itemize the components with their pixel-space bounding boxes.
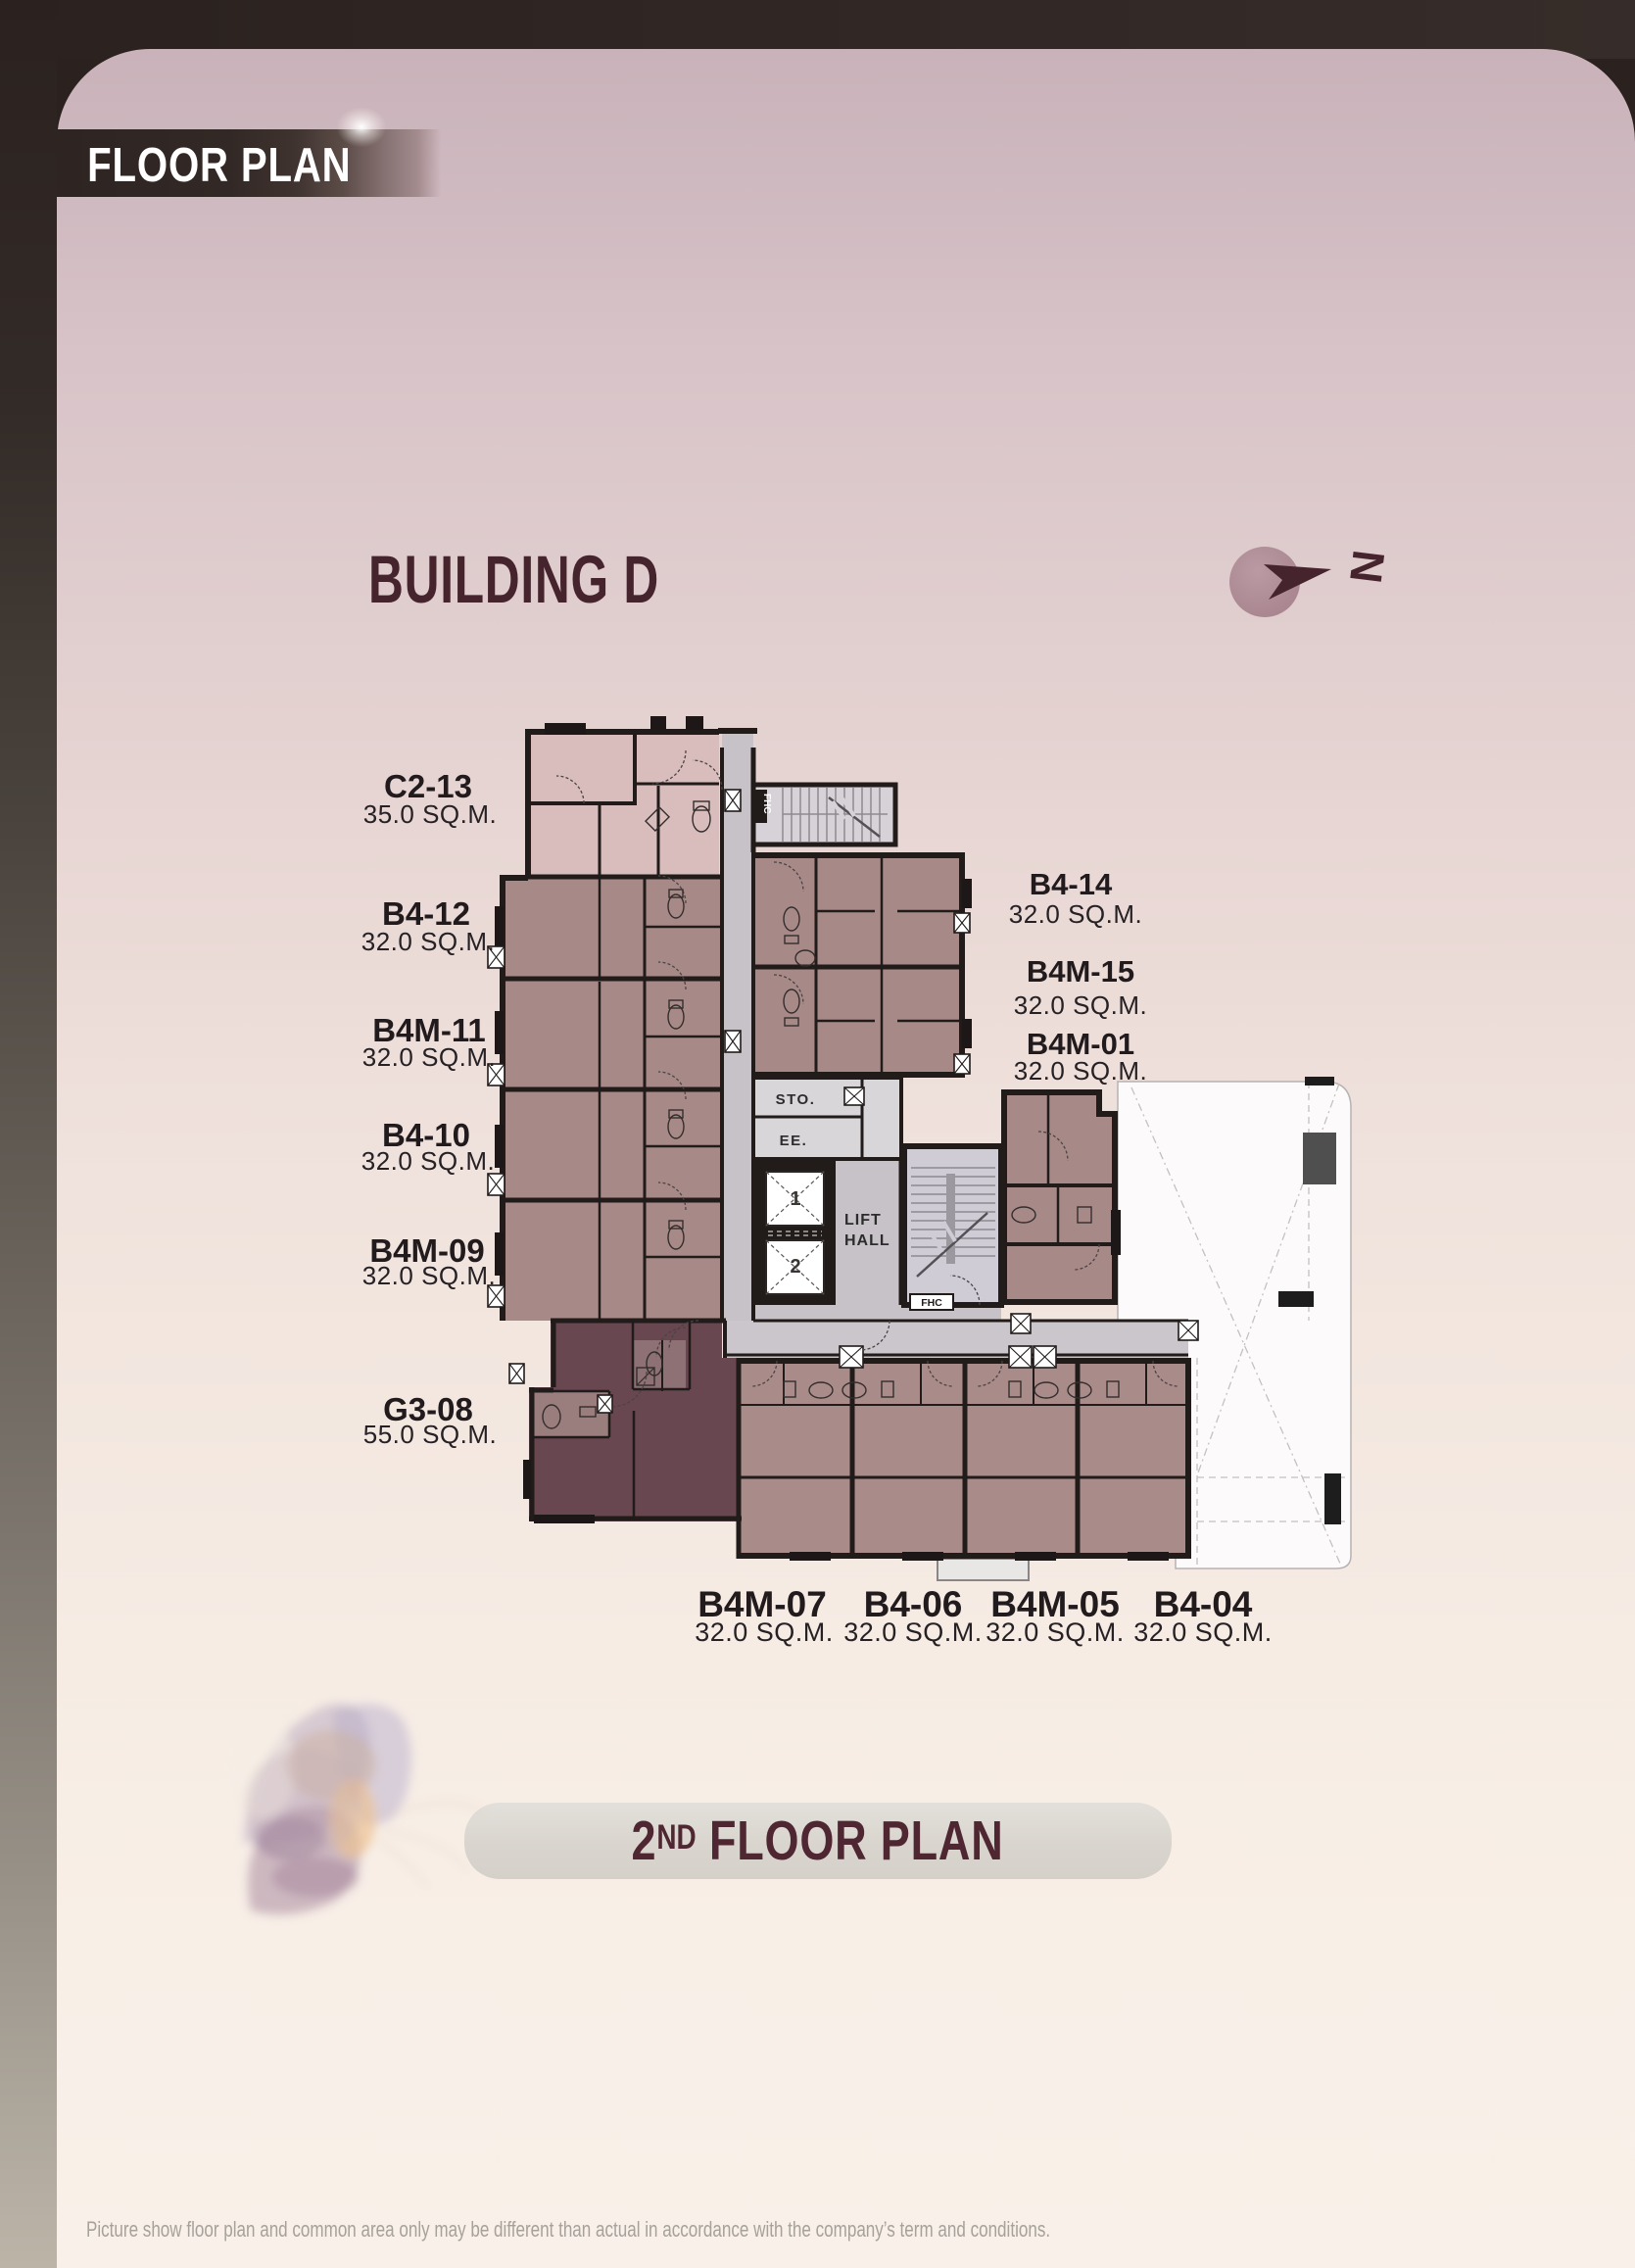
- svg-text:B4-14: B4-14: [1030, 867, 1113, 901]
- svg-text:2: 2: [790, 1256, 800, 1278]
- svg-text:32.0 SQ.M.: 32.0 SQ.M.: [362, 1042, 497, 1072]
- svg-text:55.0 SQ.M.: 55.0 SQ.M.: [363, 1420, 498, 1449]
- svg-text:32.0 SQ.M.: 32.0 SQ.M.: [1014, 1056, 1148, 1086]
- svg-text:32.0 SQ.M.: 32.0 SQ.M.: [361, 1146, 496, 1176]
- svg-text:32.0 SQ.M.: 32.0 SQ.M.: [361, 927, 496, 956]
- svg-text:FHC: FHC: [761, 794, 772, 814]
- svg-text:B4M-15: B4M-15: [1027, 954, 1134, 989]
- svg-text:EE.: EE.: [780, 1133, 808, 1149]
- svg-text:32.0 SQ.M.: 32.0 SQ.M.: [1014, 990, 1148, 1020]
- svg-text:32.0 SQ.M.: 32.0 SQ.M.: [1009, 899, 1143, 929]
- svg-text:1: 1: [790, 1188, 800, 1210]
- svg-text:32.0 SQ.M.: 32.0 SQ.M.: [1133, 1617, 1273, 1647]
- svg-text:32.0 SQ.M.: 32.0 SQ.M.: [986, 1617, 1125, 1647]
- svg-text:32.0 SQ.M.: 32.0 SQ.M.: [843, 1617, 983, 1647]
- svg-text:HALL: HALL: [844, 1232, 890, 1249]
- svg-text:35.0 SQ.M.: 35.0 SQ.M.: [363, 799, 498, 829]
- svg-text:FHC: FHC: [921, 1297, 942, 1309]
- svg-text:STO.: STO.: [776, 1091, 816, 1108]
- svg-text:LIFT: LIFT: [844, 1212, 882, 1229]
- svg-text:32.0 SQ.M.: 32.0 SQ.M.: [362, 1261, 497, 1290]
- svg-text:N: N: [1340, 548, 1395, 586]
- svg-text:32.0 SQ.M.: 32.0 SQ.M.: [695, 1617, 834, 1647]
